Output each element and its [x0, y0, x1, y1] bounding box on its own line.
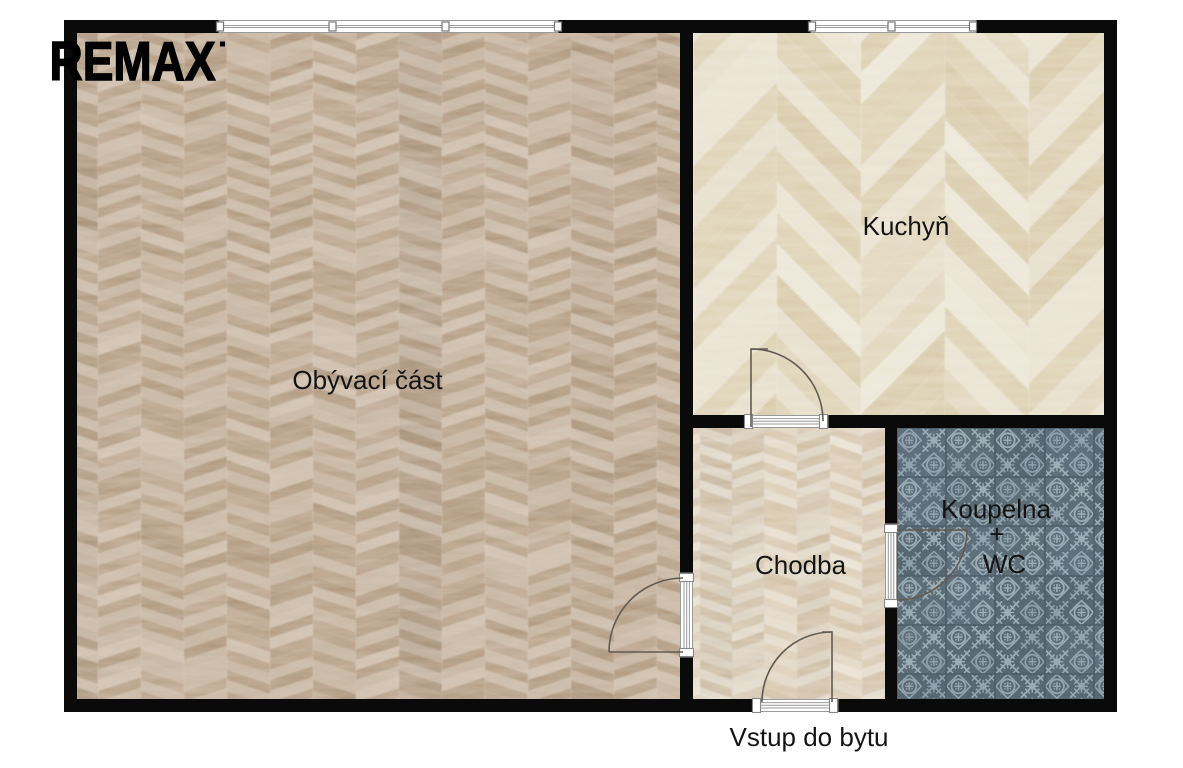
svg-text:WC: WC: [983, 549, 1026, 579]
svg-text:+: +: [989, 519, 1004, 549]
svg-text:REMAX: REMAX: [50, 30, 216, 92]
svg-text:Vstup do bytu: Vstup do bytu: [730, 722, 889, 752]
svg-text:Obývací část: Obývací část: [292, 365, 443, 395]
svg-text:Chodba: Chodba: [755, 550, 847, 580]
svg-text:Kuchyň: Kuchyň: [863, 211, 950, 241]
